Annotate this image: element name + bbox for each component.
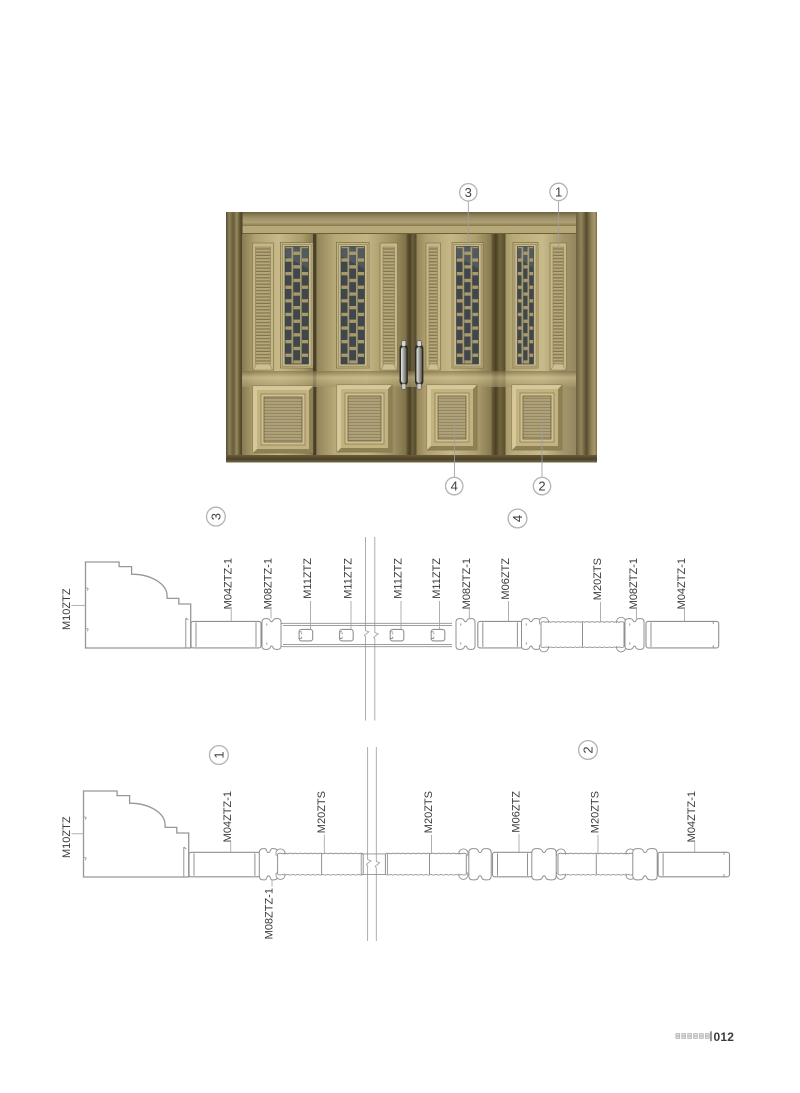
svg-text:M04ZTZ-1: M04ZTZ-1 bbox=[676, 558, 688, 609]
svg-text:2: 2 bbox=[538, 479, 545, 494]
svg-text:M11ZTZ: M11ZTZ bbox=[431, 558, 443, 599]
svg-text:M11ZTZ: M11ZTZ bbox=[393, 558, 405, 599]
svg-text:M04ZTZ-1: M04ZTZ-1 bbox=[223, 558, 235, 609]
svg-text:M20ZTS: M20ZTS bbox=[423, 791, 435, 833]
svg-text:M20ZTS: M20ZTS bbox=[592, 558, 604, 600]
svg-text:M11ZTZ: M11ZTZ bbox=[343, 558, 355, 599]
svg-text:M04ZTZ-1: M04ZTZ-1 bbox=[686, 791, 698, 842]
svg-text:M20ZTS: M20ZTS bbox=[590, 791, 602, 833]
svg-text:M06ZTZ: M06ZTZ bbox=[500, 558, 512, 600]
svg-text:M08ZTZ-1: M08ZTZ-1 bbox=[628, 558, 640, 609]
svg-text:012: 012 bbox=[714, 1030, 735, 1044]
svg-text:M20ZTS: M20ZTS bbox=[316, 791, 328, 833]
svg-text:3: 3 bbox=[208, 513, 223, 520]
svg-text:M04ZTZ-1: M04ZTZ-1 bbox=[222, 791, 234, 842]
svg-text:M08ZTZ-1: M08ZTZ-1 bbox=[263, 558, 275, 609]
svg-text:M06ZTZ: M06ZTZ bbox=[511, 791, 523, 833]
svg-text:M08ZTZ-1: M08ZTZ-1 bbox=[461, 558, 473, 609]
svg-text:4: 4 bbox=[510, 515, 525, 522]
svg-text:M08ZTZ-1: M08ZTZ-1 bbox=[264, 888, 276, 939]
svg-text:M10ZTZ: M10ZTZ bbox=[61, 816, 73, 858]
svg-text:3: 3 bbox=[465, 185, 472, 200]
svg-text:2: 2 bbox=[581, 746, 596, 753]
svg-text:1: 1 bbox=[211, 751, 226, 758]
svg-text:4: 4 bbox=[451, 479, 458, 494]
svg-text:M11ZTZ: M11ZTZ bbox=[302, 558, 314, 599]
svg-text:1: 1 bbox=[555, 185, 562, 200]
svg-text:M10ZTZ: M10ZTZ bbox=[61, 588, 73, 630]
